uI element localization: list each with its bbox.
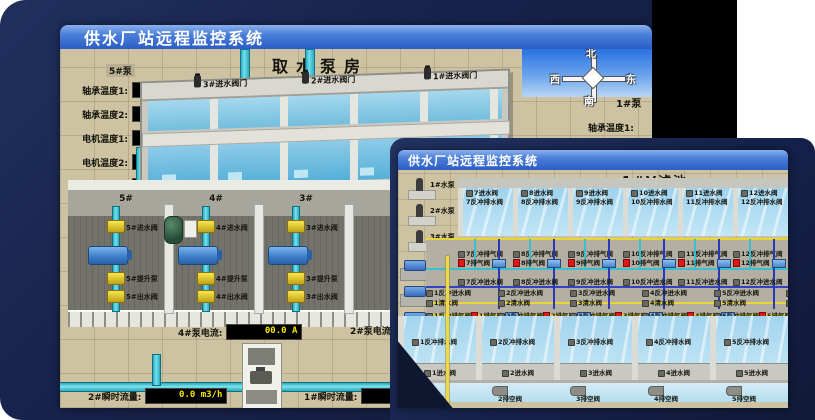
front-hmi-window: 供水厂站远程监控系统 1#V滤池 1#水泵 2#水泵 [398,150,788,408]
pump2-current-label: 2#泵电流: [350,324,394,337]
cell-front-wall: 3进水阀 [560,363,632,380]
valve-icon [580,370,587,377]
intake-valve-label: 2#进水阀门 [311,74,355,87]
control-box [492,259,506,268]
valve-actuator-icon [424,67,431,79]
control-box [772,259,786,268]
backwash-drain-valve-label: 7反冲排水阀 [466,198,503,206]
inlet-valve-icon[interactable] [287,220,305,233]
readout-label: 电机温度2: [62,156,128,169]
valve-icon [741,190,748,197]
readout-label: 轴承温度2: [62,108,128,121]
flow1-label: 1#瞬时流量: [304,390,357,403]
front-window-title: 供水厂站远程监控系统 [408,152,538,169]
control-box [717,259,731,268]
backwash-drain-valve-label: 1反冲排水阀 [420,338,457,346]
air-valve-icon [678,259,685,267]
ground-strip [398,402,788,408]
pump-platform [408,190,436,200]
pump-valve-icon[interactable] [287,272,305,285]
valve-actuator-icon [302,72,309,84]
air-valve[interactable]: 10排气阀 [623,250,678,269]
blower-body-icon [404,286,426,297]
outlet-valve-label: 5#出水阀 [126,292,158,302]
desktop: { "back": { "titlebar": "供水厂站远程监控系统", "s… [0,0,815,420]
pump-valve-icon[interactable] [197,272,215,285]
backwash-drain-valve-label: 12反冲排水阀 [741,198,783,206]
inlet-valve-label: 3进水阀 [588,369,612,377]
filter-cell[interactable]: 5反冲排水阀 5进水阀 [710,316,788,380]
front-window-titlebar[interactable]: 供水厂站远程监控系统 [398,150,788,170]
lift-pump-label: 5#提升泵 [126,274,158,284]
compass-star [582,67,605,90]
valve-actuator-icon [194,75,201,87]
compass-west: 西 [550,71,560,86]
filter-cell[interactable]: 7进水阀 7反冲排水阀 [458,188,513,236]
air-valve-icon [513,259,520,267]
backwash-drain-valve-label: 8反冲排水阀 [521,198,558,206]
control-box [547,259,561,268]
inlet-valve-icon[interactable] [107,220,125,233]
backwash-drain-valve-label: 10反冲排水阀 [631,198,673,206]
valve-icon [568,339,575,346]
air-valve-icon [458,259,465,267]
outlet-valve-label: 3#出水阀 [306,292,338,302]
cell-front-wall: 4进水阀 [638,363,710,380]
filter-cell[interactable]: 8进水阀 8反冲排水阀 [513,188,568,236]
pump-platform [408,216,436,226]
inlet-valve-label: 2进水阀 [510,369,534,377]
backwash-drain-valve-label: 3反冲排水阀 [576,338,613,346]
flow2-label: 2#瞬时流量: [88,390,141,403]
inlet-valve-label: 7进水阀 [474,189,498,197]
bay-number-label: 3# [262,194,350,204]
lift-pump-label: 3#提升泵 [306,274,338,284]
vertical-pump-icon [416,178,423,191]
bay-number-label: 4# [172,194,260,204]
inlet-valve-label: 9进水阀 [584,189,608,197]
back-window-title: 供水厂站远程监控系统 [84,25,264,49]
valve-icon [736,370,743,377]
filter-cells-top-row: 7排空阀 8排空阀 9排空阀 10排空阀 11排空阀 [458,178,788,238]
pump5-panel-title: 5#泵 [106,64,135,77]
pump-valve-icon[interactable] [107,272,125,285]
inlet-valve-label: 8进水阀 [529,189,553,197]
inlet-valve-label: 1进水阀 [432,369,456,377]
vertical-pump-icon [416,230,423,243]
top-filter-cells: 7进水阀 7反冲排水阀 8进水阀 8反冲排水阀 9进水阀 9反冲排水阀 [458,188,788,236]
air-valve-icon [623,259,630,267]
cabinet-base [246,390,277,404]
filter-cell[interactable]: 9进水阀 9反冲排水阀 [568,188,623,236]
background-black-region [652,0,737,138]
pump4-current-label: 4#泵电流: [178,326,222,339]
bay-divider-wall [344,204,354,314]
valve-icon [686,190,693,197]
valve-icon [412,339,419,346]
vertical-pump-icon [416,204,423,217]
intake-valve[interactable]: 1#进水阀门 [424,66,477,83]
air-valve[interactable]: 8排气阀 [513,250,568,269]
outlet-valve-label: 4#出水阀 [216,292,248,302]
air-valve-icon [568,259,575,267]
lift-pump-label: 4#提升泵 [216,274,248,284]
control-box [184,220,197,238]
valve-gallery: 7反冲排气阀8反冲排气阀9反冲排气阀10反冲排气阀11反冲排气阀12反冲排气阀 … [426,238,788,316]
readout-label: 电机温度1: [62,132,128,145]
intake-valve[interactable]: 2#进水阀门 [302,70,355,87]
readout-label: 轴承温度1: [62,84,128,97]
valve-icon [631,190,638,197]
water-pump-label: 2#水泵 [430,206,455,216]
inlet-valve-label: 4#进水阀 [216,223,248,233]
valve-icon [658,370,665,377]
water-pump-label: 1#水泵 [430,180,455,190]
filter-cell[interactable]: 2反冲排水阀 2进水阀 [476,316,554,380]
inlet-valve-icon[interactable] [197,220,215,233]
back-window-titlebar[interactable]: 供水厂站远程监控系统 [60,25,652,49]
inlet-valve-label: 3#进水阀 [306,223,338,233]
outlet-valve-icon[interactable] [107,290,125,303]
air-valve-icon [733,259,740,267]
cabinet-panel [248,348,275,365]
inlet-valve-label: 5#进水阀 [126,223,158,233]
pump1-panel-title: 1#泵 [616,95,652,110]
water-pump-unit[interactable]: 1#水泵 [398,178,458,202]
control-box [662,259,676,268]
bay-number-label: 5# [82,194,170,204]
compass-north: 北 [586,49,596,60]
backwash-drain-valve-label: 11反冲排水阀 [686,198,728,206]
intake-valve-label: 1#进水阀门 [433,70,477,83]
outlet-valve-icon[interactable] [197,290,215,303]
filter-cell[interactable]: 11进水阀 11反冲排水阀 [678,188,733,236]
air-valve[interactable]: 9排气阀 [568,250,623,269]
outlet-valve-icon[interactable] [287,290,305,303]
flow2-led: 0.0 m3/h [145,388,227,404]
inlet-valve-label: 11进水阀 [694,189,723,197]
cabinet-valve-icon [250,371,272,384]
lift-pump-icon[interactable] [88,246,128,265]
valve-icon [724,339,731,346]
air-valve-label: 12排气阀 [741,259,770,267]
valve-icon [646,339,653,346]
valve-icon [502,370,509,377]
inlet-valve-label: 4进水阀 [666,369,690,377]
valve-icon [521,190,528,197]
backwash-drain-valve-label: 2反冲排水阀 [498,338,535,346]
control-box [602,259,616,268]
intake-valve[interactable]: 3#进水阀门 [194,74,247,91]
cell-front-wall: 5进水阀 [716,363,788,380]
blower-body-icon [404,260,426,271]
valve-icon [466,190,473,197]
bottom-filter-cells: 1反冲排水阀 1进水阀 2反冲排水阀 2进水阀 3反冲排水阀 [398,316,788,380]
pump4-current-meter: 4#泵电流: 00.0 A [178,324,302,340]
backwash-drain-valve-label: 4反冲排水阀 [654,338,691,346]
air-valve-label: 8排气阀 [521,259,545,267]
pump4-current-led: 00.0 A [226,324,302,340]
backwash-drain-valve-label: 5反冲排水阀 [732,338,769,346]
flow2-meter: 2#瞬时流量: 0.0 m3/h [88,388,227,404]
manifold-stub-pipe [152,354,161,386]
intake-valve-label: 3#进水阀门 [203,78,247,91]
air-valve-label: 9排气阀 [576,259,600,267]
readout-label: 轴承温度1: [588,121,652,134]
filter-cell[interactable]: 4反冲排水阀 4进水阀 [632,316,710,380]
inlet-valve-label: 5进水阀 [744,369,768,377]
pump-bay: 5# 5#进水阀 5#提升泵 5#出水阀 [82,190,170,310]
inlet-valve-label: 10进水阀 [639,189,668,197]
air-scour-pipe [446,256,449,408]
air-valve-label: 7排气阀 [466,259,490,267]
air-valve[interactable]: 12排气阀 [733,250,788,269]
backwash-drain-valve-label: 9反冲排水阀 [576,198,613,206]
cell-front-wall: 2进水阀 [482,363,554,380]
compass-east: 东 [626,71,636,86]
inlet-valve-label: 12进水阀 [749,189,778,197]
air-valve[interactable]: 7排气阀 [458,250,513,269]
filter-cells-bottom-row: 1反冲排水阀 1进水阀 2反冲排水阀 2进水阀 3反冲排水阀 [398,316,788,408]
water-pump-unit[interactable]: 2#水泵 [398,204,458,228]
surge-tank [164,216,183,244]
air-valve-label: 11排气阀 [686,259,715,267]
filter-cell[interactable]: 10进水阀 10反冲排水阀 [623,188,678,236]
lift-pump-icon[interactable] [268,246,308,265]
air-valve-label: 10排气阀 [631,259,660,267]
filter-cell[interactable]: 3反冲排水阀 3进水阀 [554,316,632,380]
top-air-valves: 7排气阀8排气阀9排气阀10排气阀11排气阀12排气阀 [458,250,788,269]
pump-bay: 4# 4#进水阀 4#提升泵 4#出水阀 [172,190,260,310]
pump-bay: 3# 3#进水阀 3#提升泵 3#出水阀 [262,190,350,310]
valve-icon [576,190,583,197]
lift-pump-icon[interactable] [178,246,218,265]
filter-cell[interactable]: 12进水阀 12反冲排水阀 [733,188,788,236]
flow-meter-cabinet [242,343,282,408]
air-valve[interactable]: 11排气阀 [678,250,733,269]
valve-icon [490,339,497,346]
v-filter-scene: 1#V滤池 1#水泵 2#水泵 3#水泵 [398,170,788,408]
